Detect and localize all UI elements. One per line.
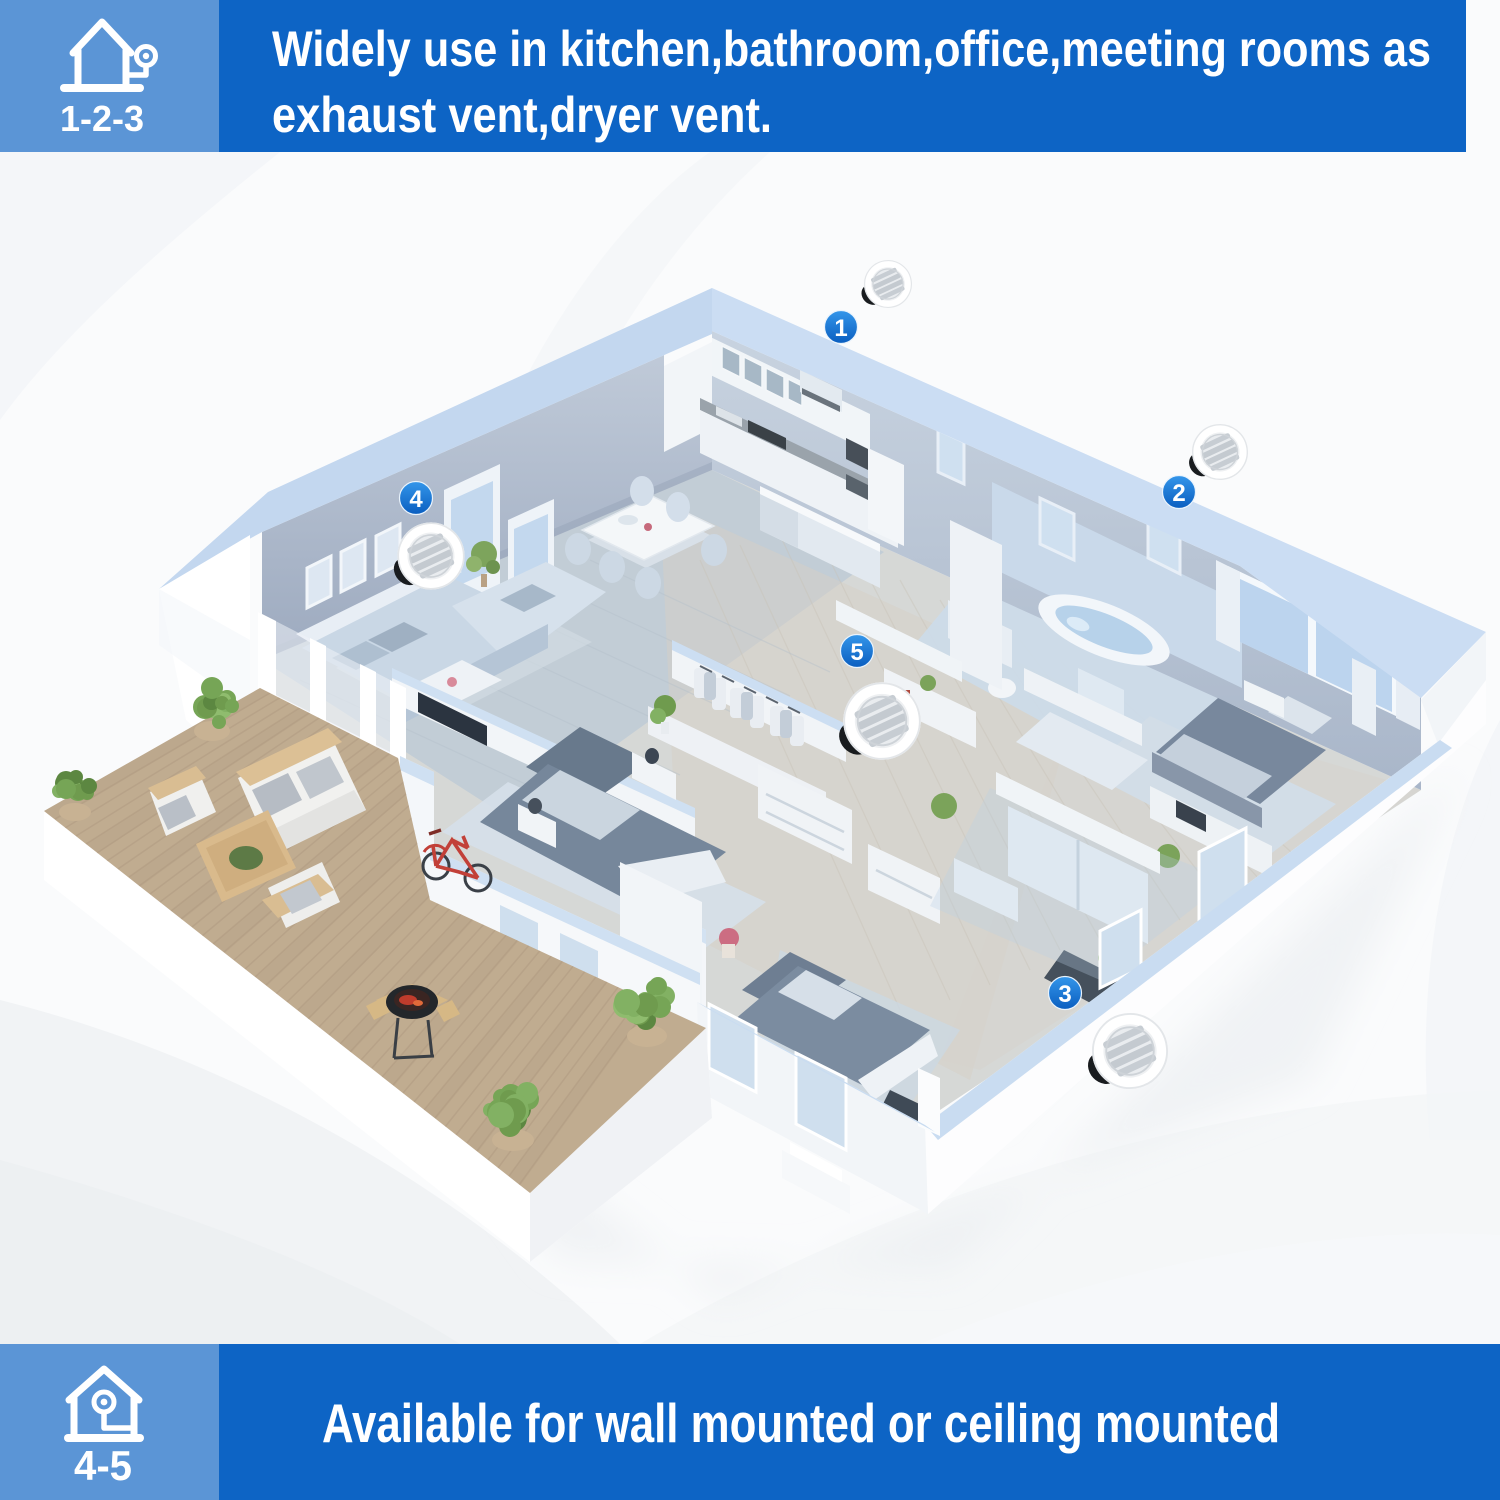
svg-text:2: 2: [1172, 480, 1185, 507]
svg-text:5: 5: [850, 639, 863, 666]
svg-text:Available for wall mounted or: Available for wall mounted or ceiling mo…: [322, 1392, 1280, 1454]
svg-text:Widely use in kitchen,bathroom: Widely use in kitchen,bathroom,office,me…: [272, 21, 1431, 77]
svg-text:1-2-3: 1-2-3: [60, 98, 144, 139]
svg-text:4-5: 4-5: [74, 1442, 132, 1489]
svg-text:exhaust vent,dryer vent.: exhaust vent,dryer vent.: [272, 87, 772, 143]
svg-text:4: 4: [409, 486, 423, 513]
svg-text:1: 1: [834, 315, 847, 342]
svg-text:3: 3: [1058, 981, 1071, 1008]
